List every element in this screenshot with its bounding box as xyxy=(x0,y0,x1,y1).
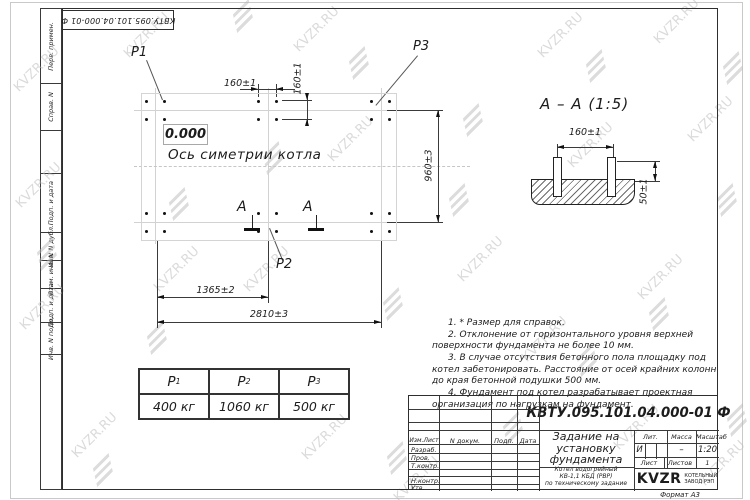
dim-total-span: 2810±3 xyxy=(219,309,319,320)
margin-label: Перв. примен. xyxy=(47,22,55,71)
dim-section-bolt-spacing: 160±1 xyxy=(560,127,610,138)
dimension-arrow xyxy=(305,93,309,100)
dimension-arrow xyxy=(157,295,164,299)
anchor-bolt-dot xyxy=(275,212,278,215)
section-cut-letter-left: А xyxy=(237,199,247,215)
dimension-arrow xyxy=(251,87,258,91)
load-table-header: P1 xyxy=(139,369,209,394)
section-view-title: А – А (1:5) xyxy=(540,95,629,113)
dimension-arrow xyxy=(557,145,564,149)
document-number-cell: КВТУ.095.101.04.000-01 Ф xyxy=(539,396,717,430)
dimension-arrow xyxy=(653,174,657,181)
anchor-bolt-dot xyxy=(275,100,278,103)
dimension-arrow xyxy=(261,295,268,299)
tb-sheet-label: Лист xyxy=(634,459,664,467)
anchor-bolt-dot xyxy=(388,212,391,215)
dimension-arrow xyxy=(436,215,440,222)
anchor-bolt-dot xyxy=(370,230,373,233)
boiler-axis-label: Ось симетрии котла xyxy=(168,147,321,163)
stamp-doc-number: КВТУ.095.101.04.000-01 Ф xyxy=(61,16,175,25)
tb-lit-value: И xyxy=(634,445,645,455)
load-table-value: 400 кг xyxy=(139,394,209,419)
dimension-arrow xyxy=(653,161,657,168)
title-block-line xyxy=(539,396,540,491)
title-block-line xyxy=(409,409,539,410)
anchor-bolt-dot xyxy=(388,230,391,233)
format-label: Формат А3 xyxy=(640,491,720,499)
title-block-line xyxy=(409,476,539,477)
title-block-line xyxy=(409,484,539,485)
tb-mass-header: Масса xyxy=(667,433,696,441)
anchor-bolt-dot xyxy=(275,118,278,121)
document-subtitle-cell: Котел водогрейный КВ-1,1 КБД (РВР) по те… xyxy=(539,467,633,488)
anchor-bolt-dot xyxy=(257,100,260,103)
concrete-pad-hatched xyxy=(531,179,635,205)
title-block-line xyxy=(409,453,539,454)
margin-cell: Инв. N подл. xyxy=(40,322,62,355)
document-number: КВТУ.095.101.04.000-01 Ф xyxy=(526,405,730,421)
manufacturer-logo: KVZR КОТЕЛЬНЫЙ ЗАВОД РЭП xyxy=(634,468,717,489)
anchor-bolt-dot xyxy=(163,230,166,233)
load-label-p3: P3 xyxy=(413,39,429,54)
title-block-line xyxy=(696,430,697,468)
title-block-line xyxy=(667,430,668,468)
anchor-bolt-dot xyxy=(163,100,166,103)
load-table-value: 1060 кг xyxy=(209,394,279,419)
title-block: Изм.Лист N докум. Подп. Дата Разраб. Про… xyxy=(408,395,718,490)
margin-label: Справ. N xyxy=(47,92,55,122)
anchor-bolt-left xyxy=(553,157,562,197)
title-block-line xyxy=(664,457,665,468)
note-1: 1. * Размер для справок. xyxy=(432,318,720,330)
title-block-line xyxy=(634,457,719,458)
anchor-bolt-dot xyxy=(145,118,148,121)
tb-sheets-label: Листов xyxy=(664,459,696,467)
section-cut-letter-right: А xyxy=(303,199,313,215)
title-block-line xyxy=(634,468,719,469)
load-label-p2: P2 xyxy=(276,257,292,272)
doc-title-line: фундамента xyxy=(550,454,623,466)
load-table-header: P3 xyxy=(279,369,349,394)
anchor-bolt-dot xyxy=(257,212,260,215)
anchor-bolt-dot xyxy=(145,230,148,233)
tb-scale-value: 1:20 xyxy=(696,445,719,455)
title-block-line xyxy=(409,469,539,470)
title-block-line xyxy=(409,461,539,462)
tb-sheets-value: 1 xyxy=(696,459,719,467)
title-block-line xyxy=(539,467,634,468)
margin-cell xyxy=(40,130,62,174)
dim-plan-height: 960±3 xyxy=(424,144,435,188)
dimension-arrow xyxy=(436,110,440,117)
anchor-bolt-dot xyxy=(145,100,148,103)
dimension-arrow xyxy=(276,87,283,91)
anchor-bolt-dot xyxy=(163,118,166,121)
tb-scale-header: Масштаб xyxy=(696,433,719,441)
document-title-cell: Задание на установку фундамента xyxy=(539,430,633,467)
title-block-line xyxy=(409,422,539,423)
title-block-line xyxy=(634,430,635,491)
title-block-line xyxy=(409,430,539,431)
tb-mass-value: – xyxy=(667,445,696,455)
foundation-outline xyxy=(141,93,397,241)
note-2: 2. Отклонение от горизонтального уровня … xyxy=(432,330,720,353)
doc-subtitle-line: по техническому задание xyxy=(545,481,627,488)
tb-row-utv: Утв. xyxy=(411,484,425,492)
anchor-bolt-dot xyxy=(370,118,373,121)
dim-bolt-protrusion: 50±1 xyxy=(639,170,650,214)
anchor-bolt-dot xyxy=(370,100,373,103)
load-table-header: P2 xyxy=(209,369,279,394)
margin-cell: Справ. N xyxy=(40,83,62,131)
anchor-bolt-dot xyxy=(257,230,260,233)
tb-col-izm: Изм.Лист xyxy=(409,437,439,444)
load-table: P1 P2 P3 400 кг 1060 кг 500 кг xyxy=(138,368,350,420)
anchor-bolt-right xyxy=(607,157,616,197)
margin-cell: Перв. примен. xyxy=(40,8,62,84)
dimension-arrow xyxy=(374,320,381,324)
dimension-arrow xyxy=(157,320,164,324)
anchor-bolt-dot xyxy=(388,100,391,103)
dim-bolt-spacing-v: 160±1 xyxy=(293,57,304,101)
anchor-bolt-dot xyxy=(370,212,373,215)
kvzr-logo-caption: КОТЕЛЬНЫЙ ЗАВОД РЭП xyxy=(684,473,717,485)
anchor-bolt-dot xyxy=(275,230,278,233)
anchor-bolt-dot xyxy=(388,118,391,121)
title-block-line xyxy=(634,443,719,444)
anchor-bolt-dot xyxy=(145,212,148,215)
load-label-p1: P1 xyxy=(131,45,147,60)
dimension-arrow xyxy=(305,119,309,126)
load-table-value: 500 кг xyxy=(279,394,349,419)
title-block-line xyxy=(409,444,539,445)
margin-cell xyxy=(40,354,62,490)
kvzr-logo-text: KVZR xyxy=(637,471,682,487)
anchor-bolt-dot xyxy=(257,118,260,121)
doc-title-line: Задание на xyxy=(553,431,620,443)
anchor-bolt-dot xyxy=(163,212,166,215)
tb-lit-header: Лит. xyxy=(634,433,667,441)
margin-cell: Подп. и дата xyxy=(40,173,62,233)
margin-label: Подп. и дата xyxy=(47,181,55,225)
dimension-arrow xyxy=(606,145,613,149)
title-block-line xyxy=(539,430,719,431)
dim-mid-span: 1365±2 xyxy=(168,285,263,296)
drawing-sheet: KVZR.RUKVZR.RUKVZR.RUKVZR.RUKVZR.RUKVZR.… xyxy=(0,0,750,500)
note-3: 3. В случае отсутствия бетонного пола пл… xyxy=(432,353,720,388)
level-mark: 0.000 xyxy=(163,124,208,145)
top-stamp: КВТУ.095.101.04.000-01 Ф xyxy=(62,10,174,30)
